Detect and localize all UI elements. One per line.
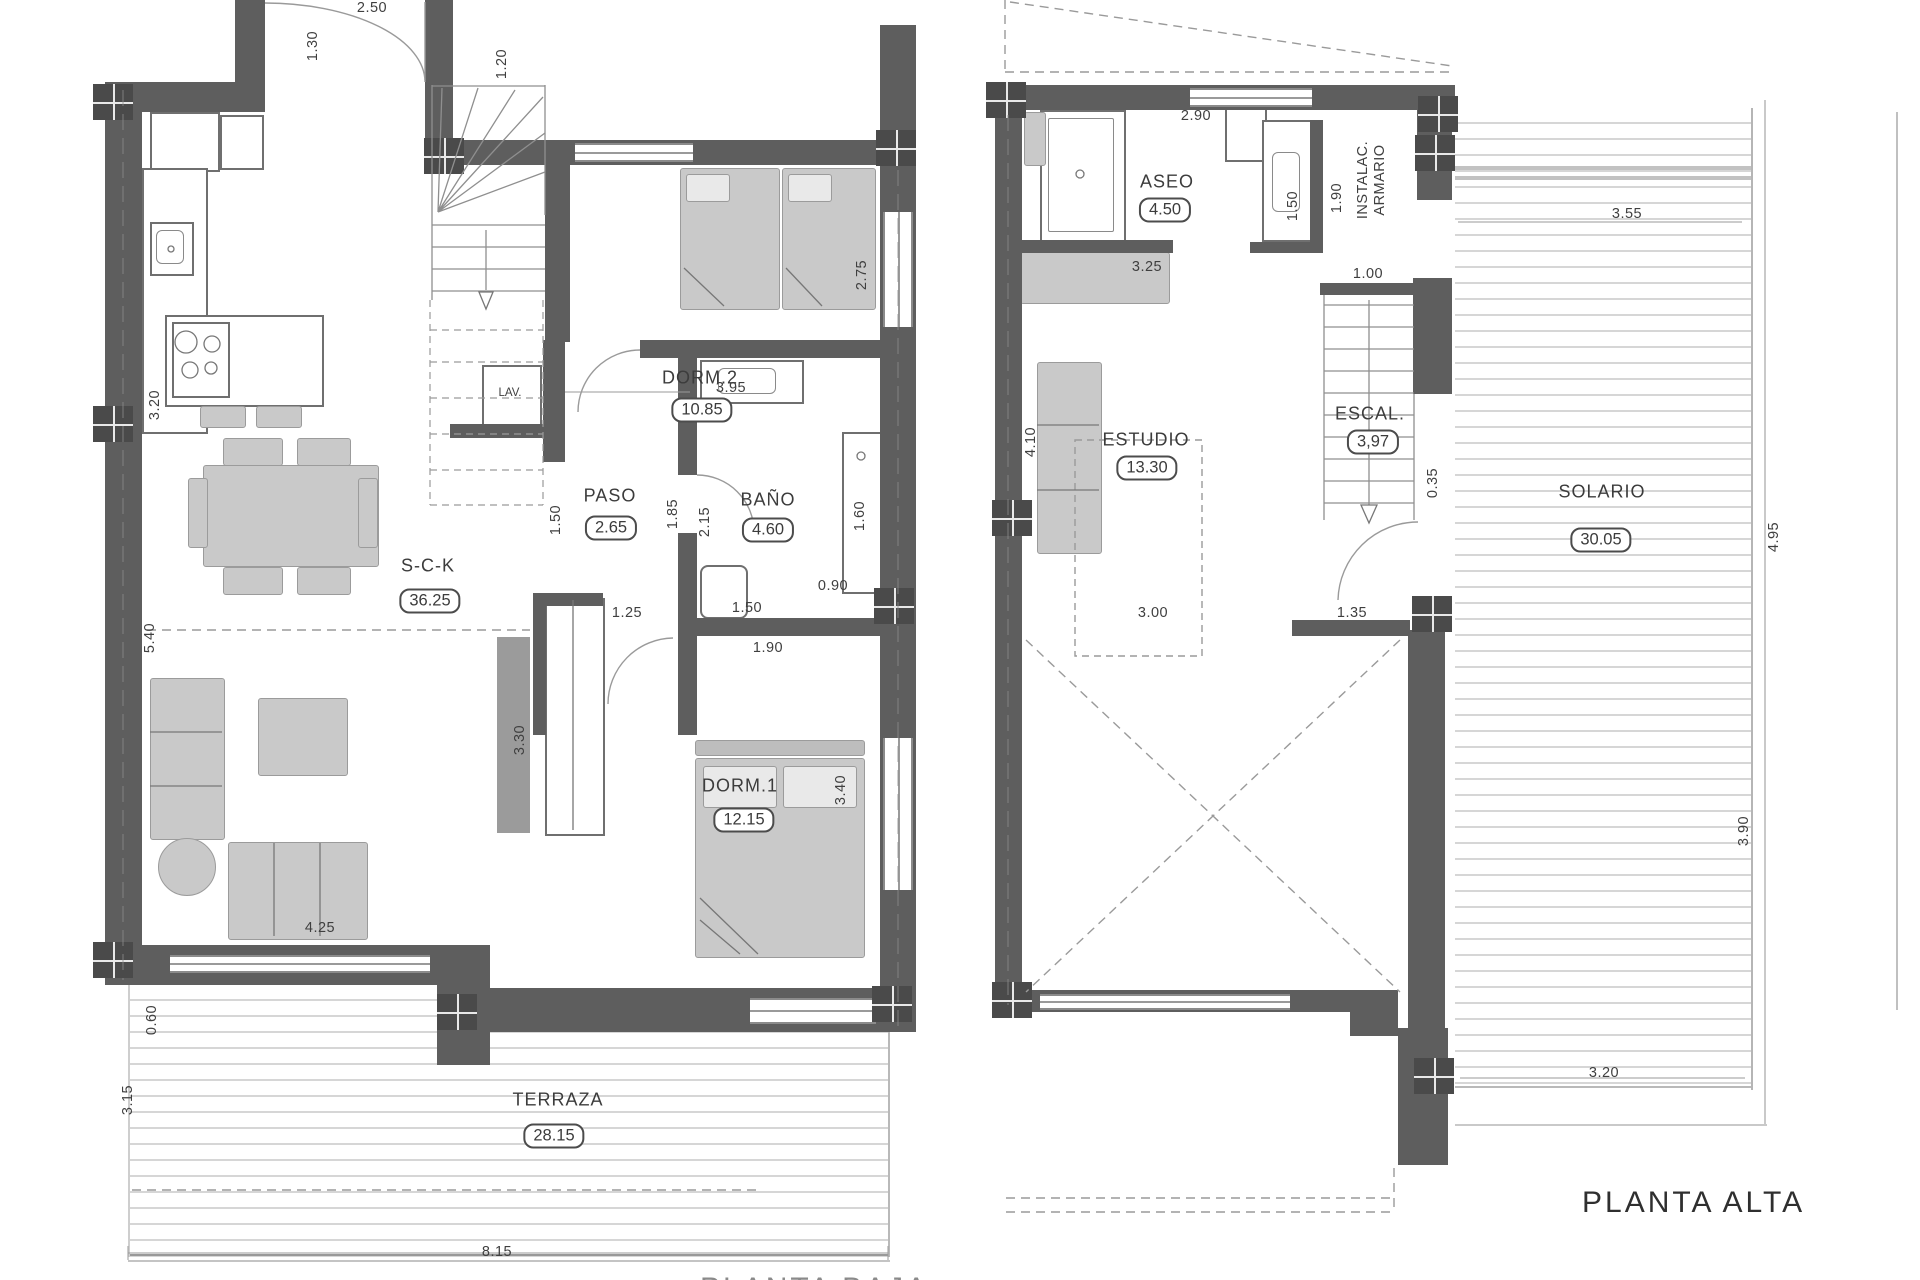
dim-label: 3.20: [1589, 1065, 1619, 1081]
dim-label: 1.35: [1337, 605, 1367, 621]
linework-overlay: [0, 0, 1920, 1280]
dim-label: 1.20: [494, 49, 510, 79]
floor-plan-sheet: S-C-K36.25PASO2.65BAÑO4.60DORM.210.85DOR…: [0, 0, 1920, 1280]
room-label-dorm-1: DORM.1: [702, 776, 778, 797]
dim-label: 1.50: [732, 600, 762, 616]
small-label: INSTALAC.ARMARIO: [1355, 141, 1389, 219]
dim-label: 0.60: [144, 1005, 160, 1035]
dim-label: 3.90: [1736, 816, 1752, 846]
room-area-ba-o: 4.60: [742, 518, 794, 543]
room-area-dorm-2: 10.85: [671, 398, 732, 423]
entry-door-arc: [265, 3, 425, 82]
dim-label: 0.35: [1425, 468, 1441, 498]
dim-label: 3.00: [1138, 605, 1168, 621]
room-label-aseo: ASEO: [1140, 172, 1194, 193]
dim-label: 3.20: [147, 390, 163, 420]
dorm1-door-arc: [608, 638, 673, 704]
room-area-estudio: 13.30: [1116, 456, 1177, 481]
dim-label: 4.25: [305, 920, 335, 936]
dim-label: 4.10: [1023, 427, 1039, 457]
dim-label: 8.15: [482, 1244, 512, 1260]
room-area-terraza: 28.15: [523, 1124, 584, 1149]
dim-label: 1.90: [1329, 183, 1345, 213]
dim-label: 3.95: [716, 380, 746, 396]
dim-label: 0.90: [818, 578, 848, 594]
dim-label: 1.50: [548, 505, 564, 535]
room-label-ba-o: BAÑO: [740, 490, 795, 511]
dim-label: 1.30: [305, 31, 321, 61]
small-label: LAV.: [498, 387, 521, 399]
room-area-aseo: 4.50: [1139, 198, 1191, 223]
room-label-terraza: TERRAZA: [512, 1090, 603, 1111]
dim-label: 3.25: [1132, 259, 1162, 275]
dim-label: 2.50: [357, 0, 387, 16]
room-area-s-c-k: 36.25: [399, 589, 460, 614]
studio-door-arc: [1338, 522, 1418, 600]
room-area-solario: 30.05: [1570, 528, 1631, 553]
dim-label: 5.40: [142, 623, 158, 653]
floor-title-lower-partial: PLANTA BAJA: [700, 1272, 929, 1280]
dim-label: 4.95: [1766, 522, 1782, 552]
footprint-dashed: [1006, 1168, 1394, 1212]
dim-label: 3.30: [512, 725, 528, 755]
room-area-dorm-1: 12.15: [713, 808, 774, 833]
roof-dashed: [1005, 0, 1452, 72]
room-label-escal: ESCAL.: [1335, 404, 1405, 425]
understair-dashed: [430, 300, 543, 505]
dim-label: 1.60: [852, 501, 868, 531]
dorm2-door-arc: [578, 350, 640, 412]
room-label-solario: SOLARIO: [1558, 482, 1645, 503]
dim-label: 2.90: [1181, 108, 1211, 124]
dim-label: 1.25: [612, 605, 642, 621]
room-area-paso: 2.65: [585, 516, 637, 541]
floor-title-upper: PLANTA ALTA: [1582, 1186, 1805, 1220]
dim-label: 2.15: [697, 507, 713, 537]
room-label-estudio: ESTUDIO: [1102, 430, 1189, 451]
dim-label: 2.75: [854, 260, 870, 290]
room-label-s-c-k: S-C-K: [401, 556, 455, 577]
staircase-ground: [432, 85, 545, 309]
dim-label: 1.85: [665, 499, 681, 529]
dim-label: 1.50: [1285, 191, 1301, 221]
dim-label: 1.90: [753, 640, 783, 656]
dim-label: 1.00: [1353, 266, 1383, 282]
void-cross: [1026, 640, 1400, 992]
room-area-escal: 3,97: [1347, 430, 1399, 455]
dim-label: 3.55: [1612, 206, 1642, 222]
dim-label: 3.15: [120, 1085, 136, 1115]
dim-label: 3.40: [833, 775, 849, 805]
room-label-paso: PASO: [584, 486, 637, 507]
